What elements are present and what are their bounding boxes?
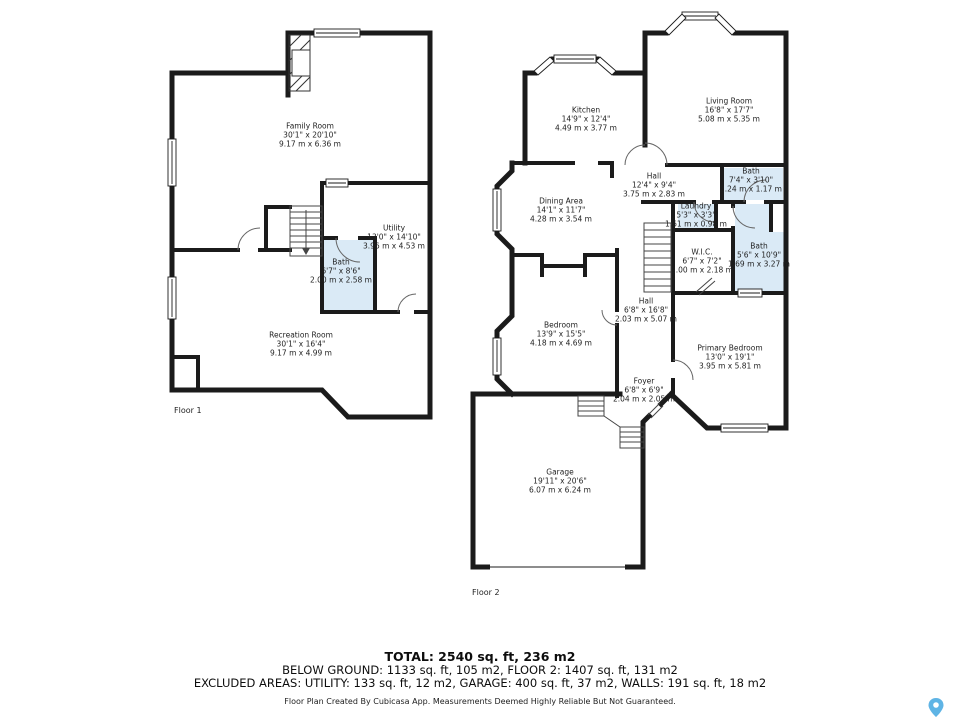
- floor2-stairs: [644, 223, 671, 292]
- room-label-utility: Utility 13'0" x 14'10" 3.96 m x 4.53 m: [363, 224, 425, 251]
- total-area-text: TOTAL: 2540 sq. ft, 236 m2: [0, 650, 960, 664]
- room-dims-imperial: 6'7" x 8'6": [310, 267, 372, 276]
- room-dims-metric: 4.18 m x 4.69 m: [530, 339, 592, 348]
- room-dims-imperial: 7'4" x 3'10": [720, 176, 782, 185]
- room-dims-metric: 2.03 m x 5.07 m: [615, 315, 677, 324]
- room-label-bath-main: Bath 5'6" x 10'9" 1.69 m x 3.27 m: [728, 242, 790, 269]
- room-label-laundry: Laundry 5'3" x 3'3" 1.61 m x 0.98 m: [665, 202, 727, 229]
- room-dims-metric: 1.69 m x 3.27 m: [728, 260, 790, 269]
- room-dims-imperial: 30'1" x 16'4": [269, 340, 333, 349]
- room-dims-metric: 9.17 m x 4.99 m: [269, 349, 333, 358]
- room-label-dining-area: Dining Area 14'1" x 11'7" 4.28 m x 3.54 …: [530, 197, 592, 224]
- room-name: Garage: [529, 468, 591, 477]
- area-summary: TOTAL: 2540 sq. ft, 236 m2 BELOW GROUND:…: [0, 650, 960, 707]
- room-dims-metric: 6.07 m x 6.24 m: [529, 486, 591, 495]
- room-name: Bath: [720, 167, 782, 176]
- room-dims-imperial: 19'11" x 20'6": [529, 477, 591, 486]
- excluded-areas-text: EXCLUDED AREAS: UTILITY: 133 sq. ft, 12 …: [0, 677, 960, 690]
- walls: [172, 16, 786, 567]
- room-label-recreation-room: Recreation Room 30'1" x 16'4" 9.17 m x 4…: [269, 331, 333, 358]
- room-dims-imperial: 6'8" x 16'8": [615, 306, 677, 315]
- room-label-bedroom: Bedroom 13'9" x 15'5" 4.18 m x 4.69 m: [530, 321, 592, 348]
- room-dims-imperial: 6'7" x 7'2": [671, 257, 733, 266]
- floor1-caption: Floor 1: [174, 406, 202, 415]
- room-name: Living Room: [698, 97, 760, 106]
- room-name: Family Room: [279, 122, 341, 131]
- room-dims-metric: 2.00 m x 2.18 m: [671, 266, 733, 275]
- room-name: Kitchen: [555, 106, 617, 115]
- room-dims-metric: 3.95 m x 5.81 m: [697, 362, 762, 371]
- room-dims-metric: 4.28 m x 3.54 m: [530, 215, 592, 224]
- room-dims-imperial: 13'0" x 14'10": [363, 233, 425, 242]
- room-name: Hall: [615, 297, 677, 306]
- room-name: Utility: [363, 224, 425, 233]
- room-label-foyer: Foyer 6'8" x 6'9" 2.04 m x 2.05 m: [613, 377, 675, 404]
- floor-plan-page: Family Room 30'1" x 20'10" 9.17 m x 6.36…: [0, 0, 960, 720]
- floor2-caption: Floor 2: [472, 588, 500, 597]
- room-dims-imperial: 14'9" x 12'4": [555, 115, 617, 124]
- room-name: Bath: [310, 258, 372, 267]
- room-label-wic: W.I.C. 6'7" x 7'2" 2.00 m x 2.18 m: [671, 248, 733, 275]
- disclaimer-text: Floor Plan Created By Cubicasa App. Meas…: [0, 697, 960, 707]
- map-pin-icon: [926, 697, 946, 719]
- room-dims-metric: 3.75 m x 2.83 m: [623, 190, 685, 199]
- room-name: Bath: [728, 242, 790, 251]
- room-label-hall-upper: Hall 12'4" x 9'4" 3.75 m x 2.83 m: [623, 172, 685, 199]
- room-name: Primary Bedroom: [697, 344, 762, 353]
- room-dims-imperial: 12'4" x 9'4": [623, 181, 685, 190]
- room-label-garage: Garage 19'11" x 20'6" 6.07 m x 6.24 m: [529, 468, 591, 495]
- room-name: Foyer: [613, 377, 675, 386]
- room-dims-imperial: 6'8" x 6'9": [613, 386, 675, 395]
- room-name: Laundry: [665, 202, 727, 211]
- room-name: Hall: [623, 172, 685, 181]
- floor-plan-drawing: [0, 0, 960, 720]
- fireplace: [289, 35, 310, 91]
- room-dims-metric: 5.08 m x 5.35 m: [698, 115, 760, 124]
- room-dims-metric: 9.17 m x 6.36 m: [279, 140, 341, 149]
- room-dims-metric: 2.04 m x 2.05 m: [613, 395, 675, 404]
- room-label-living-room: Living Room 16'8" x 17'7" 5.08 m x 5.35 …: [698, 97, 760, 124]
- room-name: Recreation Room: [269, 331, 333, 340]
- room-label-family-room: Family Room 30'1" x 20'10" 9.17 m x 6.36…: [279, 122, 341, 149]
- room-label-kitchen: Kitchen 14'9" x 12'4" 4.49 m x 3.77 m: [555, 106, 617, 133]
- room-label-hall-lower: Hall 6'8" x 16'8" 2.03 m x 5.07 m: [615, 297, 677, 324]
- room-dims-imperial: 16'8" x 17'7": [698, 106, 760, 115]
- room-dims-metric: 1.61 m x 0.98 m: [665, 220, 727, 229]
- room-name: W.I.C.: [671, 248, 733, 257]
- room-dims-metric: 2.24 m x 1.17 m: [720, 185, 782, 194]
- room-label-bath-floor1: Bath 6'7" x 8'6" 2.00 m x 2.58 m: [310, 258, 372, 285]
- room-dims-imperial: 13'9" x 15'5": [530, 330, 592, 339]
- floor1-stairs: [290, 206, 322, 256]
- room-dims-imperial: 30'1" x 20'10": [279, 131, 341, 140]
- room-dims-imperial: 5'3" x 3'3": [665, 211, 727, 220]
- room-dims-metric: 4.49 m x 3.77 m: [555, 124, 617, 133]
- room-dims-metric: 2.00 m x 2.58 m: [310, 276, 372, 285]
- room-dims-metric: 3.96 m x 4.53 m: [363, 242, 425, 251]
- room-dims-imperial: 5'6" x 10'9": [728, 251, 790, 260]
- room-label-bath-upper: Bath 7'4" x 3'10" 2.24 m x 1.17 m: [720, 167, 782, 194]
- room-label-primary-bedroom: Primary Bedroom 13'0" x 19'1" 3.95 m x 5…: [697, 344, 762, 371]
- room-dims-imperial: 14'1" x 11'7": [530, 206, 592, 215]
- entry-steps: [620, 427, 644, 448]
- room-name: Bedroom: [530, 321, 592, 330]
- room-dims-imperial: 13'0" x 19'1": [697, 353, 762, 362]
- room-name: Dining Area: [530, 197, 592, 206]
